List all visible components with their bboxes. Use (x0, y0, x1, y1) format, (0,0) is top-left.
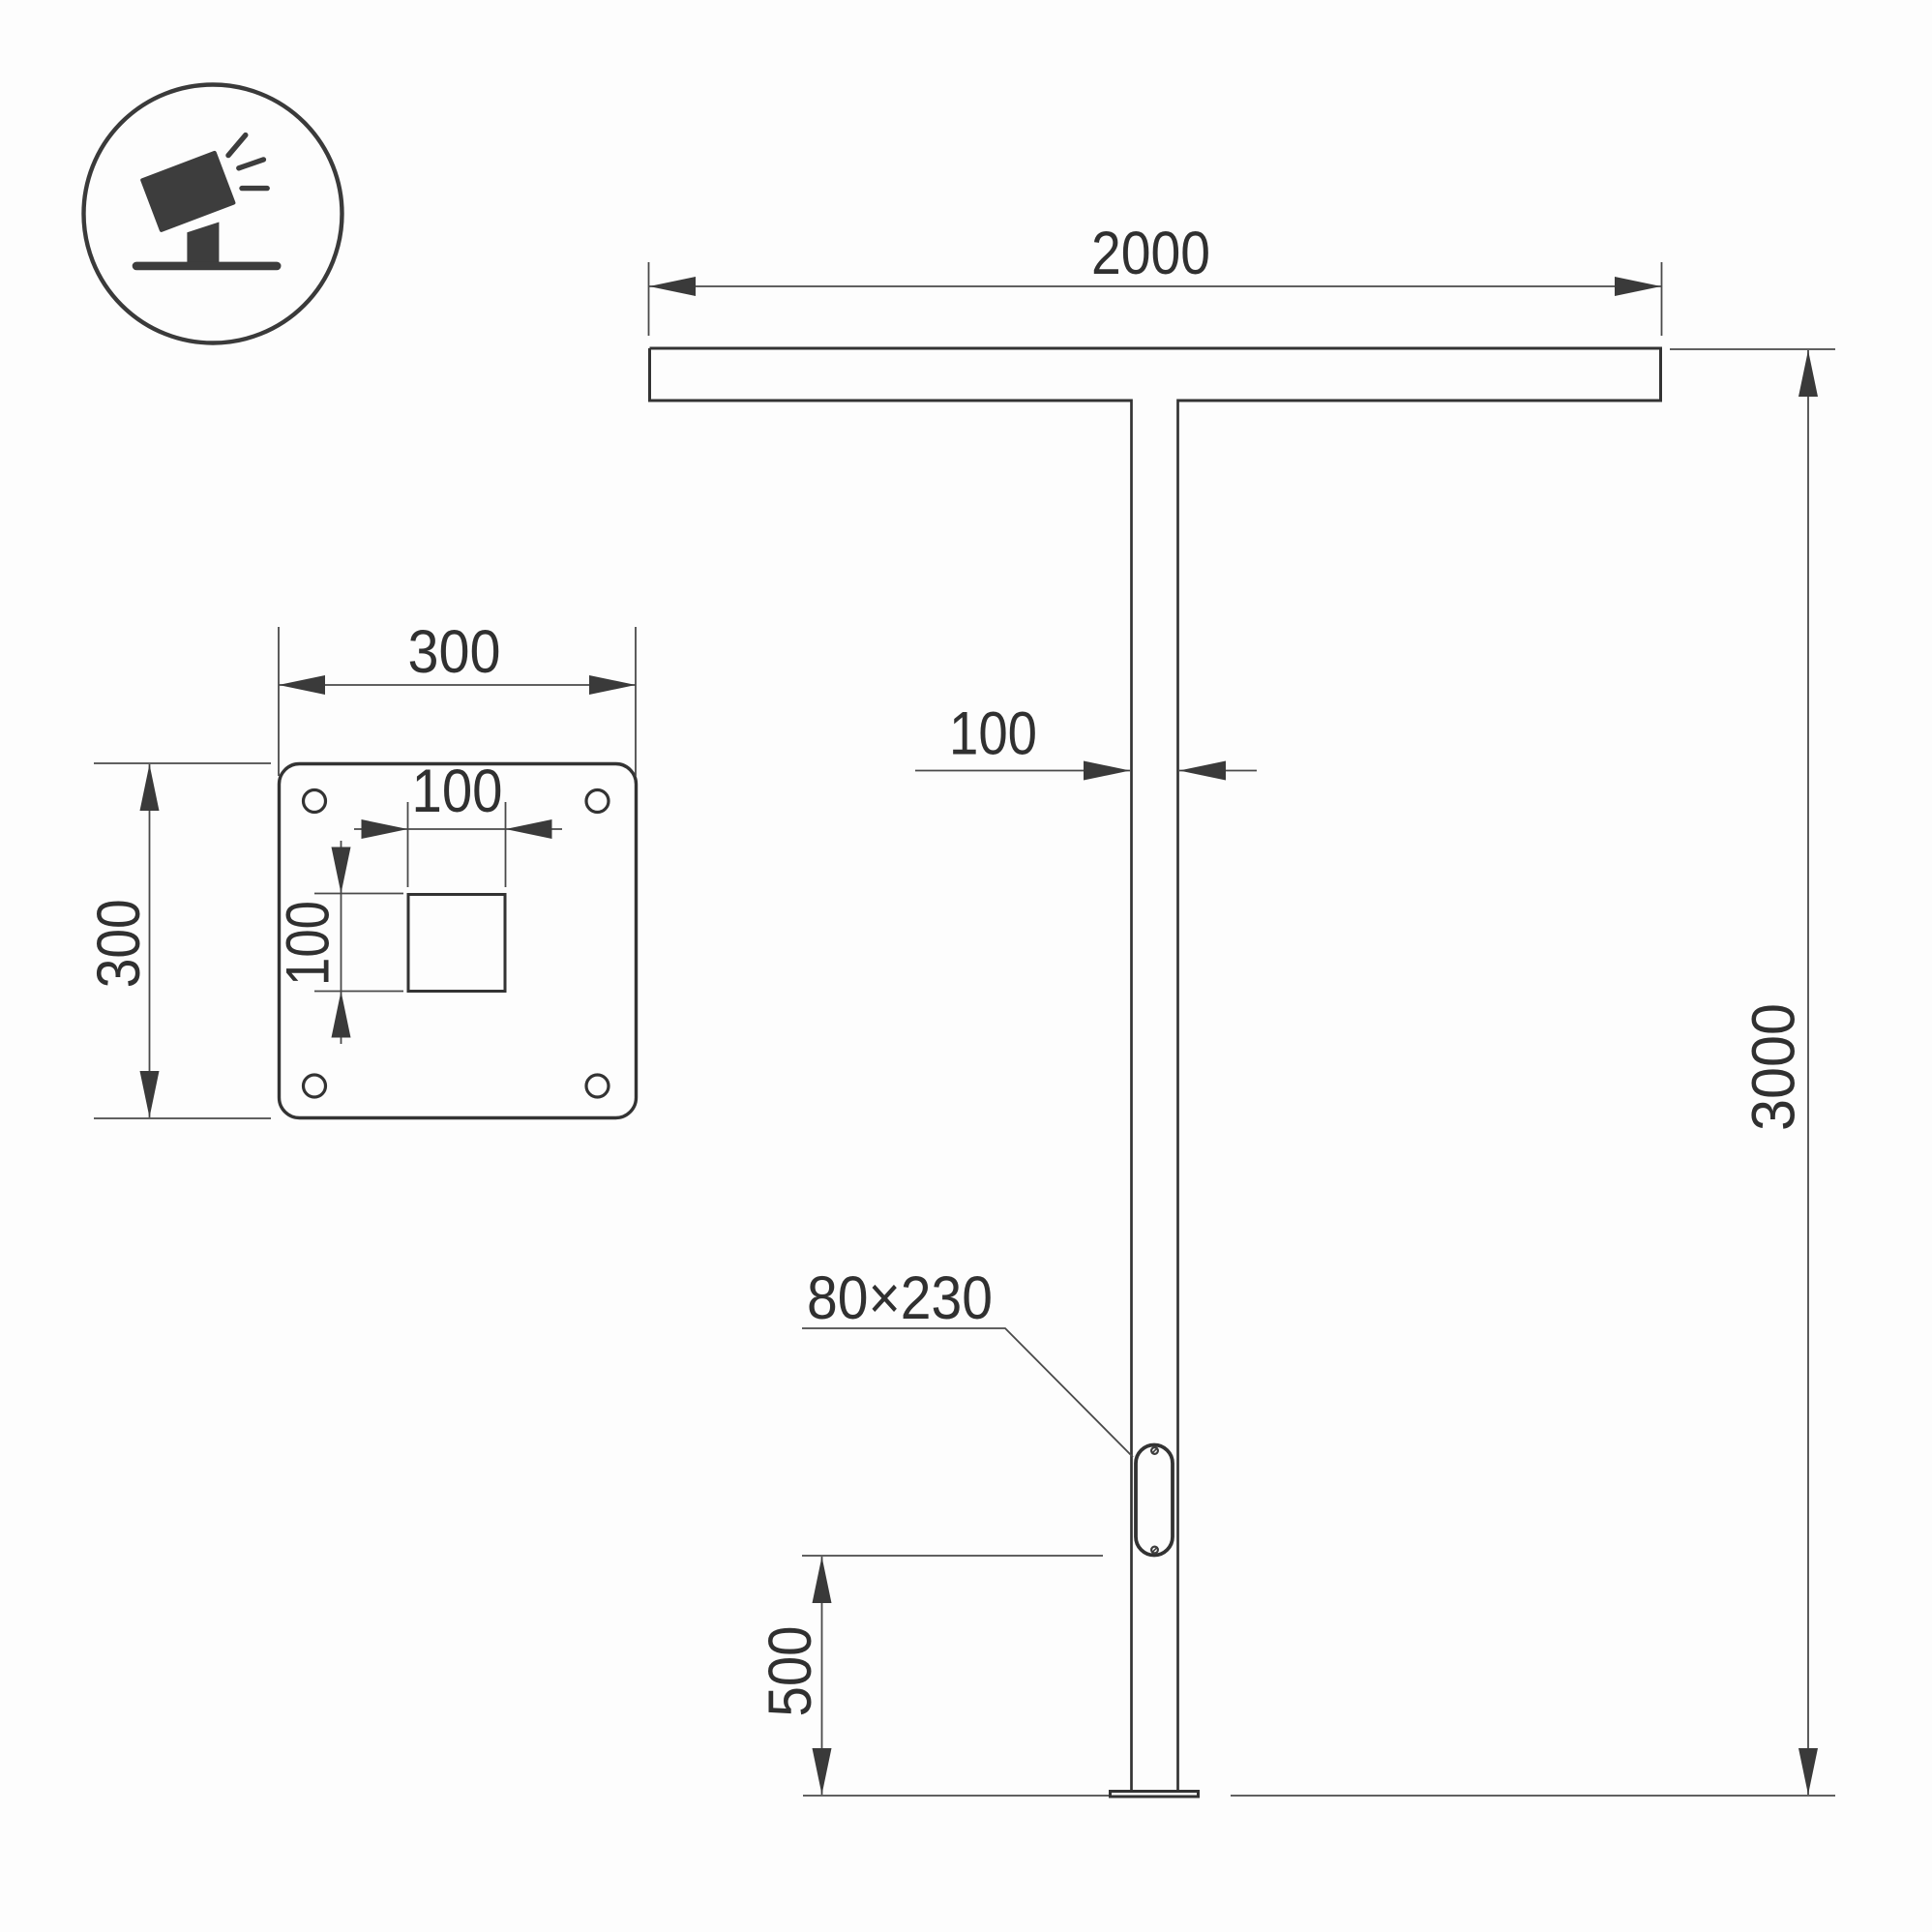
svg-text:100: 100 (949, 700, 1037, 768)
svg-text:300: 300 (85, 899, 153, 988)
svg-text:3000: 3000 (1740, 1003, 1808, 1131)
svg-text:80×230: 80×230 (807, 1264, 993, 1332)
svg-text:2000: 2000 (1091, 220, 1210, 287)
svg-text:100: 100 (275, 901, 342, 986)
svg-text:300: 300 (408, 618, 501, 686)
svg-text:500: 500 (757, 1626, 824, 1717)
svg-text:100: 100 (412, 758, 503, 825)
